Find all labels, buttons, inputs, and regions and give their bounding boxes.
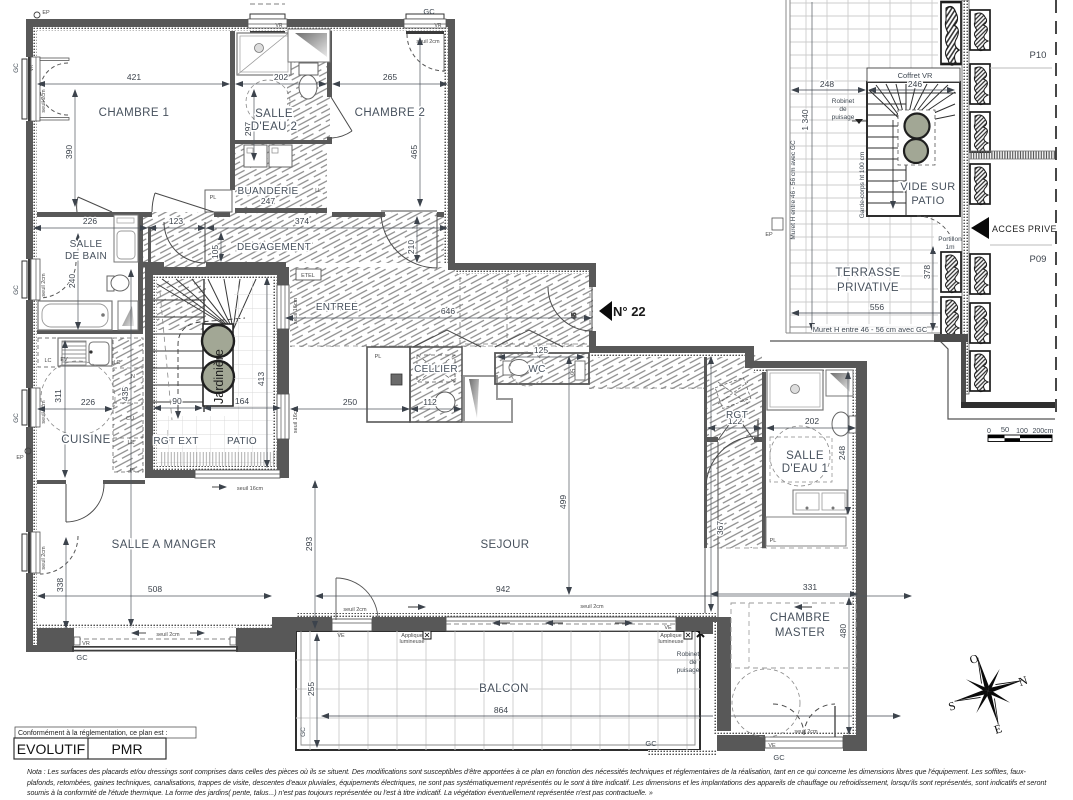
svg-text:seuil 2cm: seuil 2cm — [41, 546, 47, 570]
svg-text:LL: LL — [315, 188, 321, 194]
svg-text:VE: VE — [337, 633, 345, 639]
svg-text:1 340: 1 340 — [800, 109, 810, 131]
svg-text:seuil 2cm: seuil 2cm — [41, 89, 47, 113]
svg-text:ETEL: ETEL — [301, 273, 315, 279]
svg-text:90: 90 — [172, 396, 182, 406]
svg-text:1m: 1m — [945, 244, 954, 251]
svg-text:de: de — [689, 659, 697, 666]
svg-text:CHAMBRE 2: CHAMBRE 2 — [355, 107, 426, 119]
svg-text:SALLE: SALLE — [786, 450, 824, 462]
svg-text:248: 248 — [837, 446, 847, 460]
svg-text:GC: GC — [76, 653, 88, 662]
svg-text:Portillon: Portillon — [938, 236, 962, 243]
svg-text:CUISINE: CUISINE — [61, 434, 110, 446]
svg-text:Robinet: Robinet — [832, 98, 855, 105]
svg-text:BALCON: BALCON — [479, 683, 529, 695]
svg-text:SALLE: SALLE — [255, 108, 293, 120]
svg-text:VR: VR — [435, 23, 442, 29]
svg-text:Jardinière: Jardinière — [212, 349, 226, 404]
svg-text:VR: VR — [82, 641, 90, 647]
svg-text:465: 465 — [409, 145, 419, 159]
svg-text:GC: GC — [13, 285, 20, 295]
svg-text:seuil 16cm: seuil 16cm — [293, 406, 299, 433]
svg-text:RGT EXT: RGT EXT — [153, 436, 198, 447]
svg-text:PL: PL — [770, 538, 777, 544]
svg-text:de: de — [839, 106, 847, 113]
svg-text:240: 240 — [67, 274, 77, 288]
svg-text:EVOLUTIF: EVOLUTIF — [17, 741, 85, 757]
svg-text:164: 164 — [235, 396, 249, 406]
svg-text:seuil 2cm: seuil 2cm — [156, 632, 180, 638]
svg-text:Nota : Les surfaces des placar: Nota : Les surfaces des placards et/ou d… — [27, 768, 1027, 776]
svg-text:seuil 2cm: seuil 2cm — [794, 729, 818, 735]
svg-text:Robinet: Robinet — [677, 651, 700, 658]
svg-text:MASTER: MASTER — [775, 627, 825, 639]
svg-text:VE: VE — [768, 743, 776, 749]
svg-text:105: 105 — [210, 245, 220, 259]
svg-text:331: 331 — [803, 582, 817, 592]
svg-text:puisage: puisage — [677, 667, 700, 674]
svg-text:lumineuse: lumineuse — [658, 639, 683, 645]
svg-text:367: 367 — [715, 521, 725, 535]
svg-text:942: 942 — [496, 584, 510, 594]
svg-text:480: 480 — [838, 624, 848, 638]
svg-text:Muret H entre 46 - 56 cm avec: Muret H entre 46 - 56 cm avec GC — [813, 325, 928, 334]
svg-text:P09: P09 — [1030, 254, 1047, 265]
svg-text:ACCES PRIVE: ACCES PRIVE — [992, 224, 1057, 234]
svg-text:210: 210 — [406, 240, 416, 254]
svg-text:435: 435 — [120, 387, 130, 401]
svg-text:508: 508 — [148, 584, 162, 594]
svg-text:226: 226 — [83, 216, 97, 226]
svg-text:0: 0 — [987, 428, 991, 435]
svg-text:CHAMBRE: CHAMBRE — [770, 612, 830, 624]
svg-text:200cm: 200cm — [1032, 428, 1053, 435]
svg-text:LC: LC — [113, 360, 120, 366]
svg-text:VR: VR — [29, 64, 34, 71]
svg-text:seuil 2cm: seuil 2cm — [41, 273, 47, 297]
svg-text:CHAMBRE 1: CHAMBRE 1 — [99, 107, 170, 119]
svg-text:puisage: puisage — [832, 114, 855, 121]
svg-text:PL: PL — [375, 354, 382, 360]
svg-text:D'EAU 1: D'EAU 1 — [782, 463, 829, 475]
svg-text:PL: PL — [130, 468, 137, 474]
svg-text:556: 556 — [870, 302, 884, 312]
svg-text:374: 374 — [295, 216, 309, 226]
svg-text:VR: VR — [276, 23, 283, 29]
svg-text:646: 646 — [441, 306, 455, 316]
svg-text:soumis à la conformité de l'ét: soumis à la conformité de l'étude thermi… — [27, 789, 653, 797]
svg-text:246: 246 — [908, 79, 922, 89]
svg-text:50: 50 — [1001, 425, 1009, 434]
svg-text:GC: GC — [423, 7, 435, 16]
svg-text:GC: GC — [773, 753, 785, 762]
svg-text:seuil 2cm: seuil 2cm — [580, 604, 604, 610]
svg-text:PATIO: PATIO — [911, 195, 944, 207]
svg-text:N° 22: N° 22 — [613, 304, 646, 319]
svg-text:250: 250 — [343, 397, 357, 407]
svg-text:Conformément à la réglementati: Conformément à la réglementation, ce pla… — [18, 730, 167, 737]
svg-text:202: 202 — [805, 416, 819, 426]
svg-text:421: 421 — [127, 72, 141, 82]
svg-text:226: 226 — [81, 397, 95, 407]
svg-text:DEGAGEMENT: DEGAGEMENT — [237, 242, 311, 253]
svg-text:413: 413 — [256, 372, 266, 386]
svg-text:WC: WC — [528, 364, 545, 375]
svg-text:Garde-corps ht 100 cm: Garde-corps ht 100 cm — [859, 152, 866, 218]
svg-text:390: 390 — [64, 145, 74, 159]
svg-text:GC: GC — [13, 413, 20, 423]
svg-text:SALLE A MANGER: SALLE A MANGER — [112, 539, 217, 551]
svg-text:EP: EP — [765, 232, 773, 238]
svg-text:RGT: RGT — [726, 410, 748, 421]
svg-text:VE: VE — [664, 625, 672, 631]
svg-text:plafonds, retombées, gaines te: plafonds, retombées, gaines techniques, … — [26, 779, 1047, 787]
svg-text:248: 248 — [820, 79, 834, 89]
svg-text:125: 125 — [534, 345, 548, 355]
svg-text:112: 112 — [423, 397, 437, 407]
svg-text:SEJOUR: SEJOUR — [480, 539, 529, 551]
svg-text:EP: EP — [16, 455, 24, 461]
svg-text:N: N — [131, 374, 135, 380]
svg-text:GC: GC — [645, 739, 657, 748]
svg-text:Muret H entre 46 - 56 cm avec: Muret H entre 46 - 56 cm avec GC — [790, 140, 797, 240]
svg-text:VIDE SUR: VIDE SUR — [900, 181, 955, 193]
svg-text:864: 864 — [494, 705, 508, 715]
svg-text:293: 293 — [304, 537, 314, 551]
svg-text:SALLE: SALLE — [70, 239, 103, 250]
svg-text:255: 255 — [306, 682, 316, 696]
svg-text:CU: CU — [126, 416, 134, 422]
svg-text:265: 265 — [383, 72, 397, 82]
svg-text:202: 202 — [274, 72, 288, 82]
svg-text:EP: EP — [42, 10, 50, 16]
svg-text:GC: GC — [13, 63, 20, 73]
svg-text:seuil 16cm: seuil 16cm — [237, 486, 264, 492]
svg-text:D'EAU 2: D'EAU 2 — [251, 121, 298, 133]
svg-text:PRIVATIVE: PRIVATIVE — [837, 282, 899, 294]
svg-text:499: 499 — [558, 495, 568, 509]
svg-text:DE BAIN: DE BAIN — [65, 251, 107, 262]
svg-text:seuil 2cm: seuil 2cm — [343, 607, 367, 613]
svg-text:PATIO: PATIO — [227, 436, 257, 447]
svg-text:ENTREE: ENTREE — [316, 302, 358, 313]
svg-text:TERRASSE: TERRASSE — [835, 267, 900, 279]
svg-text:GC: GC — [300, 727, 307, 737]
svg-text:lumineuse: lumineuse — [399, 639, 424, 645]
svg-text:EV: EV — [60, 357, 68, 363]
svg-text:123: 123 — [169, 216, 183, 226]
svg-text:100: 100 — [1016, 428, 1028, 435]
svg-text:378: 378 — [922, 265, 932, 279]
svg-text:PL: PL — [210, 195, 217, 201]
svg-text:247: 247 — [261, 196, 275, 206]
svg-text:LC: LC — [44, 358, 51, 364]
svg-text:311: 311 — [53, 389, 63, 403]
svg-text:338: 338 — [55, 578, 65, 592]
svg-text:seuil 16cm: seuil 16cm — [293, 297, 299, 324]
svg-text:PMR: PMR — [111, 741, 142, 757]
svg-text:CELLIER: CELLIER — [414, 364, 458, 375]
svg-text:P10: P10 — [1030, 50, 1047, 61]
